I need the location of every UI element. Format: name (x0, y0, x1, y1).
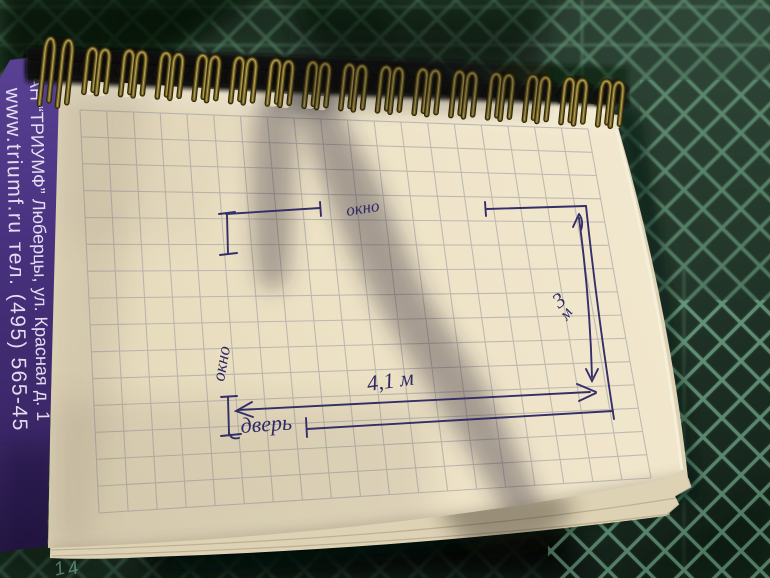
svg-text:дверь: дверь (240, 409, 293, 438)
